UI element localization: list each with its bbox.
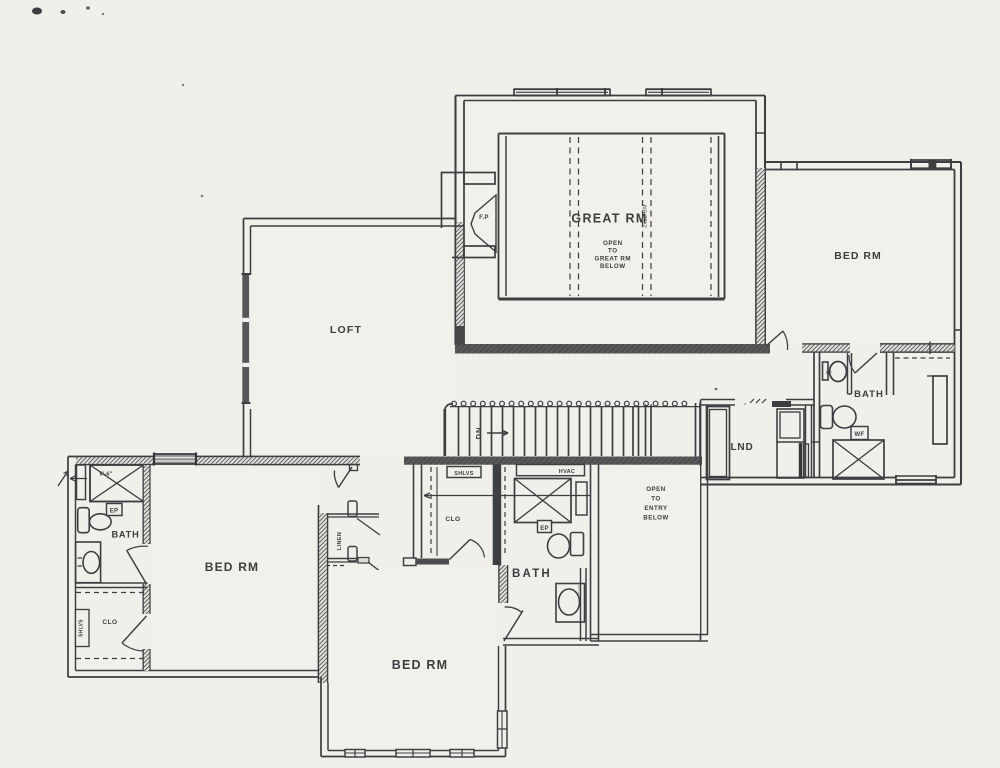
svg-text:HVAC: HVAC: [559, 469, 575, 475]
svg-text:x: x: [744, 401, 746, 406]
svg-text:GREAT RM: GREAT RM: [571, 212, 647, 226]
svg-text:6'-6": 6'-6": [100, 472, 113, 478]
svg-text:EP: EP: [110, 509, 119, 515]
svg-text:BED RM: BED RM: [392, 658, 449, 672]
svg-text:DN: DN: [474, 427, 483, 440]
svg-text:CLO: CLO: [577, 585, 582, 595]
svg-text:F.P: F.P: [479, 215, 489, 221]
svg-text:BATH: BATH: [854, 389, 884, 400]
svg-text:BATH: BATH: [512, 568, 552, 580]
svg-text:SHLVS: SHLVS: [454, 471, 473, 477]
svg-text:WF: WF: [855, 432, 865, 438]
svg-text:OPEN: OPEN: [646, 486, 666, 493]
svg-text:TO: TO: [651, 496, 660, 503]
svg-text:BED RM: BED RM: [834, 250, 881, 262]
svg-text:CLO: CLO: [445, 516, 460, 523]
svg-text:CLO: CLO: [102, 619, 117, 626]
svg-text:LINEN: LINEN: [337, 532, 343, 551]
svg-text:LND: LND: [731, 442, 754, 453]
svg-text:BELOW: BELOW: [643, 515, 669, 522]
svg-text:BED RM: BED RM: [205, 560, 260, 574]
svg-text:2x12 BM: 2x12 BM: [643, 204, 649, 228]
svg-text:SHLVS: SHLVS: [79, 619, 85, 637]
svg-text:OPEN: OPEN: [603, 240, 623, 247]
svg-text:GREAT RM: GREAT RM: [595, 255, 632, 262]
svg-text:LOFT: LOFT: [330, 324, 362, 336]
svg-text:ENTRY: ENTRY: [644, 505, 668, 512]
svg-text:BF: BF: [826, 370, 832, 375]
svg-text:EP: EP: [540, 526, 549, 532]
svg-text:BATH: BATH: [111, 530, 139, 540]
svg-text:TO: TO: [608, 248, 617, 255]
svg-text:BELOW: BELOW: [600, 263, 626, 270]
